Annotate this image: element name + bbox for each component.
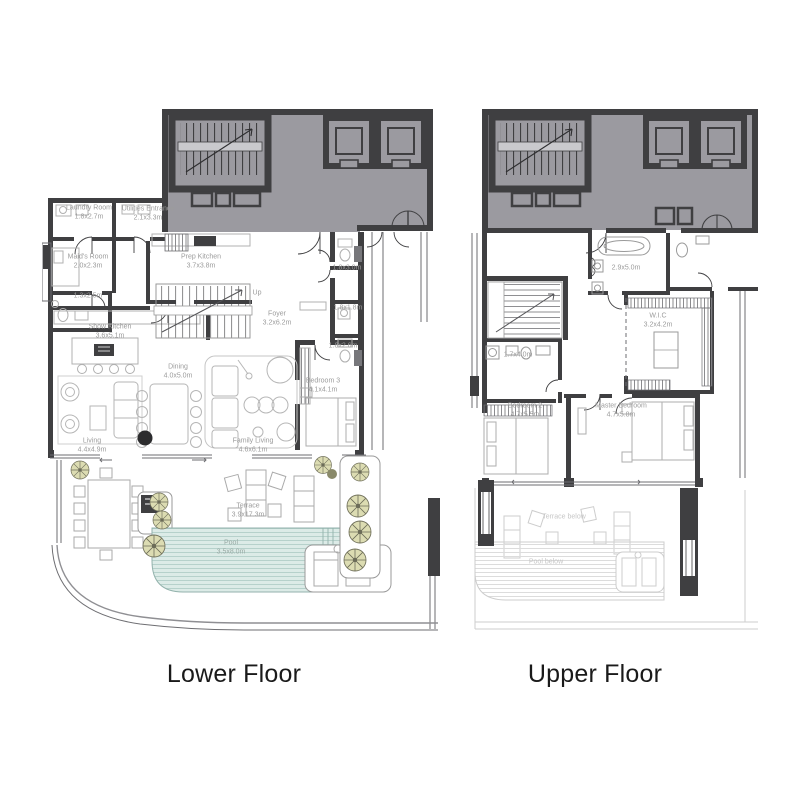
- room-dims: 4.4x4.9m: [78, 446, 107, 455]
- room-label-bedroom3: Bedroom 3 4.1x4.1m: [306, 377, 340, 396]
- room-label-laundry: Laundry Room 1.8x2.7m: [66, 204, 112, 223]
- tree-icon: [351, 463, 369, 481]
- tree-icon: [71, 461, 89, 479]
- room-label-terrace: Terrace 3.9x17.3m: [232, 502, 265, 521]
- room-name: Maid's Room: [68, 253, 109, 262]
- room-name: Pool: [217, 539, 246, 548]
- room-dims: 3.2x6.2m: [263, 319, 292, 328]
- room-name: Show Kitchen: [89, 323, 132, 332]
- room-label-utilities: Utilities Entrance 2.1x3.3m: [122, 205, 175, 224]
- room-label-maids: Maid's Room 2.0x2.3m: [68, 253, 109, 272]
- upper-master-bath: [592, 236, 709, 294]
- upper-floor-title: Upper Floor: [528, 660, 662, 689]
- lower-bedroom3: [300, 348, 356, 446]
- room-label-dining: Dining 4.0x5.0m: [164, 363, 193, 382]
- room-name: Foyer: [263, 310, 292, 319]
- elevator-icon: [378, 118, 424, 168]
- room-label-terrace-below: Terrace below: [542, 512, 586, 521]
- room-label-show-kitchen: Show Kitchen 3.6x5.1m: [89, 323, 132, 342]
- balcony-wall: [470, 376, 479, 396]
- room-label-store-mid: 1.8x1.8m: [334, 303, 363, 312]
- balcony-wall: [43, 245, 49, 269]
- tree-icon: [349, 521, 371, 543]
- lower-pool-area: [138, 456, 440, 592]
- vanity-block: [354, 350, 362, 366]
- tree-icon: [344, 549, 366, 571]
- room-label-living: Living 4.4x4.9m: [78, 437, 107, 456]
- room-name: Laundry Room: [66, 204, 112, 213]
- room-dims: 1.8x1.8m: [334, 303, 363, 312]
- room-dims: 3.6x5.1m: [89, 332, 132, 341]
- vanity-block: [354, 246, 362, 262]
- room-label-master-bath: 2.9x5.0m: [612, 263, 641, 272]
- room-name: Utilities Entrance: [122, 205, 175, 214]
- room-name: Pool below: [529, 557, 563, 566]
- upper-internal-stairs: [488, 282, 562, 338]
- room-name: Terrace: [232, 502, 265, 511]
- room-label-bath-top: 1.8x3.0m: [333, 263, 362, 272]
- room-dims: 4.1x4.1m: [306, 386, 340, 395]
- column-icon: [138, 431, 153, 446]
- room-label-master-bedroom: Master Bedroom 4.7x5.8m: [595, 402, 647, 421]
- room-label-maids-bath: 1.3x2.5m: [74, 291, 103, 300]
- lower-floor-plan-drawing: [42, 108, 442, 643]
- tree-icon: [143, 535, 165, 557]
- tree-icon: [150, 493, 168, 511]
- room-name: Bedroom 3: [306, 377, 340, 386]
- upper-bedroom2-furniture: [484, 418, 548, 474]
- lower-floor-title: Lower Floor: [167, 660, 301, 689]
- stairs-up-label: Up: [253, 288, 262, 297]
- island-sink-icon: [94, 344, 114, 356]
- elevator-icon: [698, 118, 744, 168]
- room-name: Terrace below: [542, 512, 586, 521]
- room-dims: 3.9x17.3m: [232, 511, 265, 520]
- room-name: Living: [78, 437, 107, 446]
- room-dims: 4.6x6.1m: [233, 446, 274, 455]
- room-dims: 1.3x2.5m: [74, 291, 103, 300]
- upper-floor-plan-drawing: [466, 108, 766, 643]
- room-label-bedroom2: Bedroom 2 4.7x5.5m: [508, 402, 542, 421]
- tree-icon: [347, 495, 369, 517]
- lower-internal-stairs: [154, 284, 252, 338]
- lower-common-core: [162, 109, 433, 232]
- upper-common-core: [482, 109, 758, 233]
- room-name: Bedroom 2: [508, 402, 542, 411]
- room-label-bath-bottom: 1.8x2.6m: [329, 341, 358, 350]
- floor-plans-page: Laundry Room 1.8x2.7m Utilities Entrance…: [0, 0, 800, 800]
- room-label-pool: Pool 3.5x8.0m: [217, 539, 246, 558]
- room-dims: 1.8x2.7m: [66, 213, 112, 222]
- room-name: Dining: [164, 363, 193, 372]
- room-label-wic: W.I.C 3.2x4.2m: [644, 312, 673, 331]
- room-dims: 4.0x5.0m: [164, 372, 193, 381]
- tree-icon: [153, 511, 171, 529]
- room-dims: 1.8x2.6m: [329, 341, 358, 350]
- room-dims: 3.7x3.8m: [181, 262, 221, 271]
- room-label-prep-kitchen: Prep Kitchen 3.7x3.8m: [181, 253, 221, 272]
- terrace-below-ghost: [475, 488, 758, 629]
- closet-hatch: [165, 234, 188, 251]
- room-dims: 2.0x2.3m: [68, 262, 109, 271]
- room-name: W.I.C: [644, 312, 673, 321]
- elevator-icon: [646, 118, 692, 168]
- tree-icon: [327, 469, 337, 479]
- cooktop-icon: [194, 236, 216, 246]
- room-dims: 1.8x3.0m: [333, 263, 362, 272]
- room-label-foyer: Foyer 3.2x6.2m: [263, 310, 292, 329]
- room-name: Family Living: [233, 437, 274, 446]
- room-label-upper-bath: 1.7x4.0m: [504, 350, 533, 359]
- room-dims: 2.9x5.0m: [612, 263, 641, 272]
- room-label-up: Up: [253, 288, 262, 297]
- room-dims: 4.7x5.5m: [508, 411, 542, 420]
- room-dims: 3.2x4.2m: [644, 321, 673, 330]
- room-name: Prep Kitchen: [181, 253, 221, 262]
- room-dims: 3.5x8.0m: [217, 548, 246, 557]
- room-dims: 4.7x5.8m: [595, 411, 647, 420]
- room-dims: 1.7x4.0m: [504, 350, 533, 359]
- room-dims: 2.1x3.3m: [122, 214, 175, 223]
- elevator-icon: [326, 118, 372, 168]
- room-label-family-living: Family Living 4.6x6.1m: [233, 437, 274, 456]
- room-name: Master Bedroom: [595, 402, 647, 411]
- room-label-pool-below: Pool below: [529, 557, 563, 566]
